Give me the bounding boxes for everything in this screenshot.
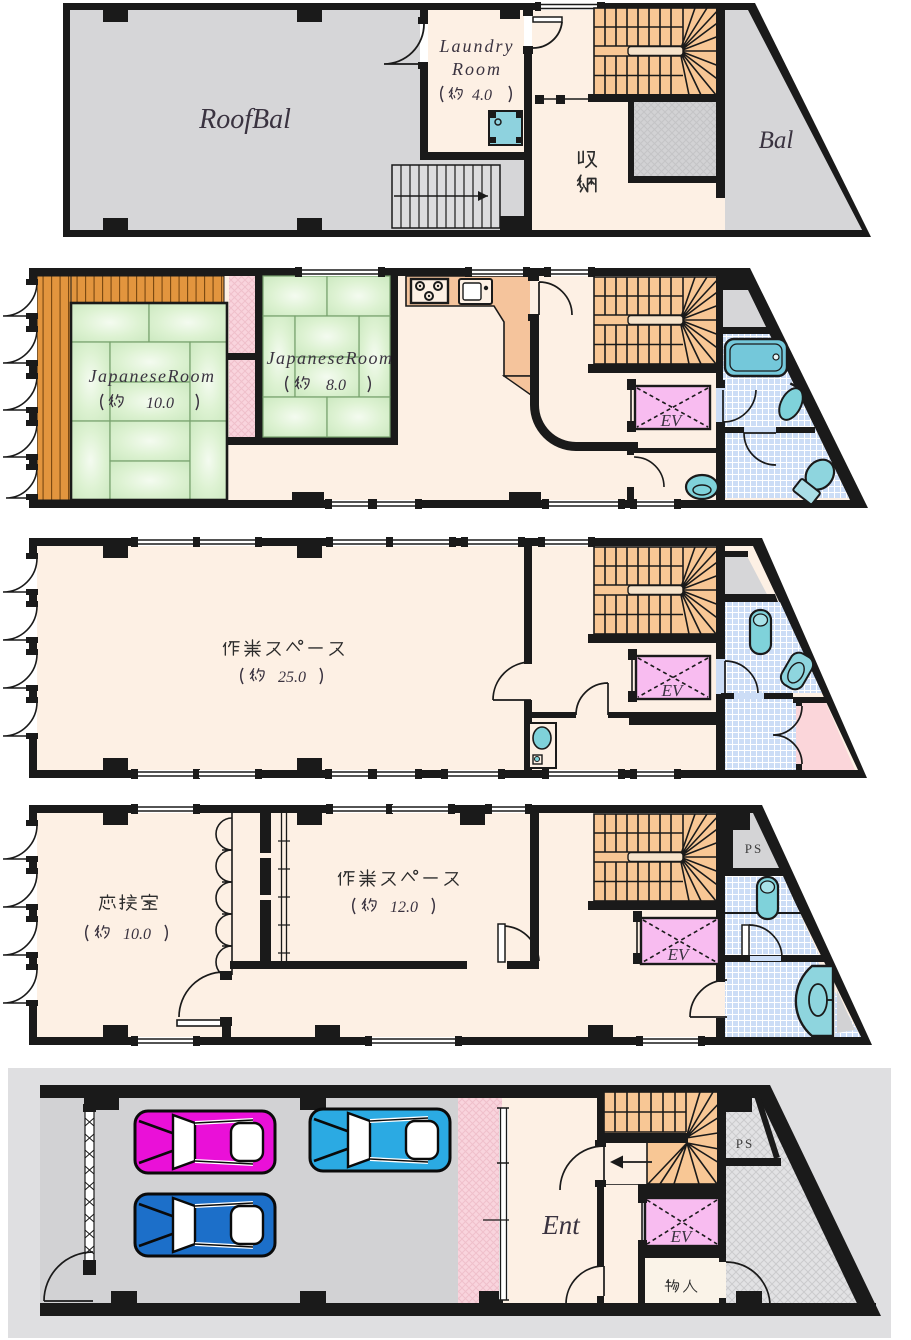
svg-text:PS: PS (745, 841, 763, 856)
svg-text:JapaneseRoom: JapaneseRoom (267, 348, 394, 368)
svg-text:Room: Room (451, 59, 502, 79)
svg-text:25.0: 25.0 (278, 669, 306, 686)
svg-text:EV: EV (660, 411, 684, 430)
svg-text:4.0: 4.0 (472, 87, 492, 104)
svg-text:RoofBal: RoofBal (198, 104, 291, 135)
svg-text:JapaneseRoom: JapaneseRoom (89, 366, 216, 386)
svg-text:Bal: Bal (759, 127, 794, 154)
svg-text:EV: EV (661, 681, 685, 700)
svg-text:PS: PS (736, 1136, 754, 1151)
svg-text:8.0: 8.0 (326, 377, 346, 394)
svg-text:EV: EV (670, 1227, 694, 1246)
svg-text:Laundry: Laundry (438, 36, 514, 56)
svg-text:Ent: Ent (541, 1210, 581, 1240)
svg-text:10.0: 10.0 (123, 926, 151, 943)
svg-text:10.0: 10.0 (146, 395, 174, 412)
svg-text:EV: EV (667, 945, 691, 964)
svg-text:12.0: 12.0 (390, 899, 418, 916)
